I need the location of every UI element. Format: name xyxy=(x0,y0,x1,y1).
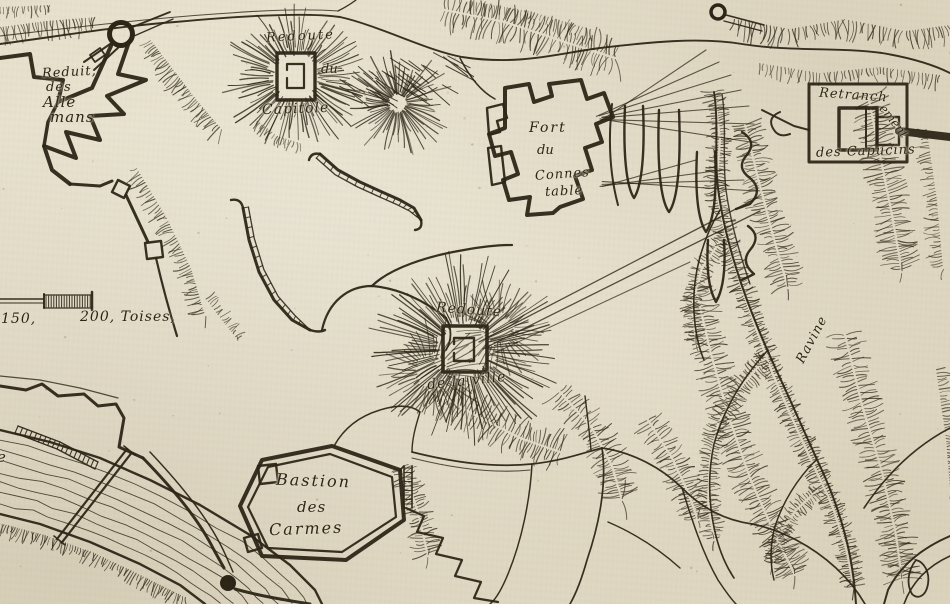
label-fort-connestable-line2: du xyxy=(537,144,554,157)
label-bastion-carmes-line2: des xyxy=(297,500,326,515)
label-bastion-carmes-line1: Bastion xyxy=(276,472,352,491)
label-redoute-capitole-line1: Redoute xyxy=(266,28,336,45)
label-edge-fragment: e xyxy=(0,450,6,465)
map-canvas: Reduit, des Alle mans Redoute du Capitol… xyxy=(0,0,950,604)
label-fort-connestable-line4: table xyxy=(545,184,584,199)
label-bastion-carmes-line3: Carmes xyxy=(269,520,344,539)
label-reduit-allemans-line1: Reduit, xyxy=(42,65,97,81)
label-fort-connestable-line1: Fort xyxy=(529,121,567,135)
label-fort-connestable-line3: Connes xyxy=(535,166,591,183)
label-reduit-allemans-line4: mans xyxy=(50,110,95,125)
label-scale-150: 150, xyxy=(1,312,36,326)
label-redoute-capitole-line3: Capitole xyxy=(262,101,330,117)
label-scale-200-toises: 200, Toises, xyxy=(80,310,176,324)
label-redoute-capitole-line2: du xyxy=(321,63,338,76)
label-retranchement-capucins-line2: des Capucins xyxy=(816,143,916,159)
